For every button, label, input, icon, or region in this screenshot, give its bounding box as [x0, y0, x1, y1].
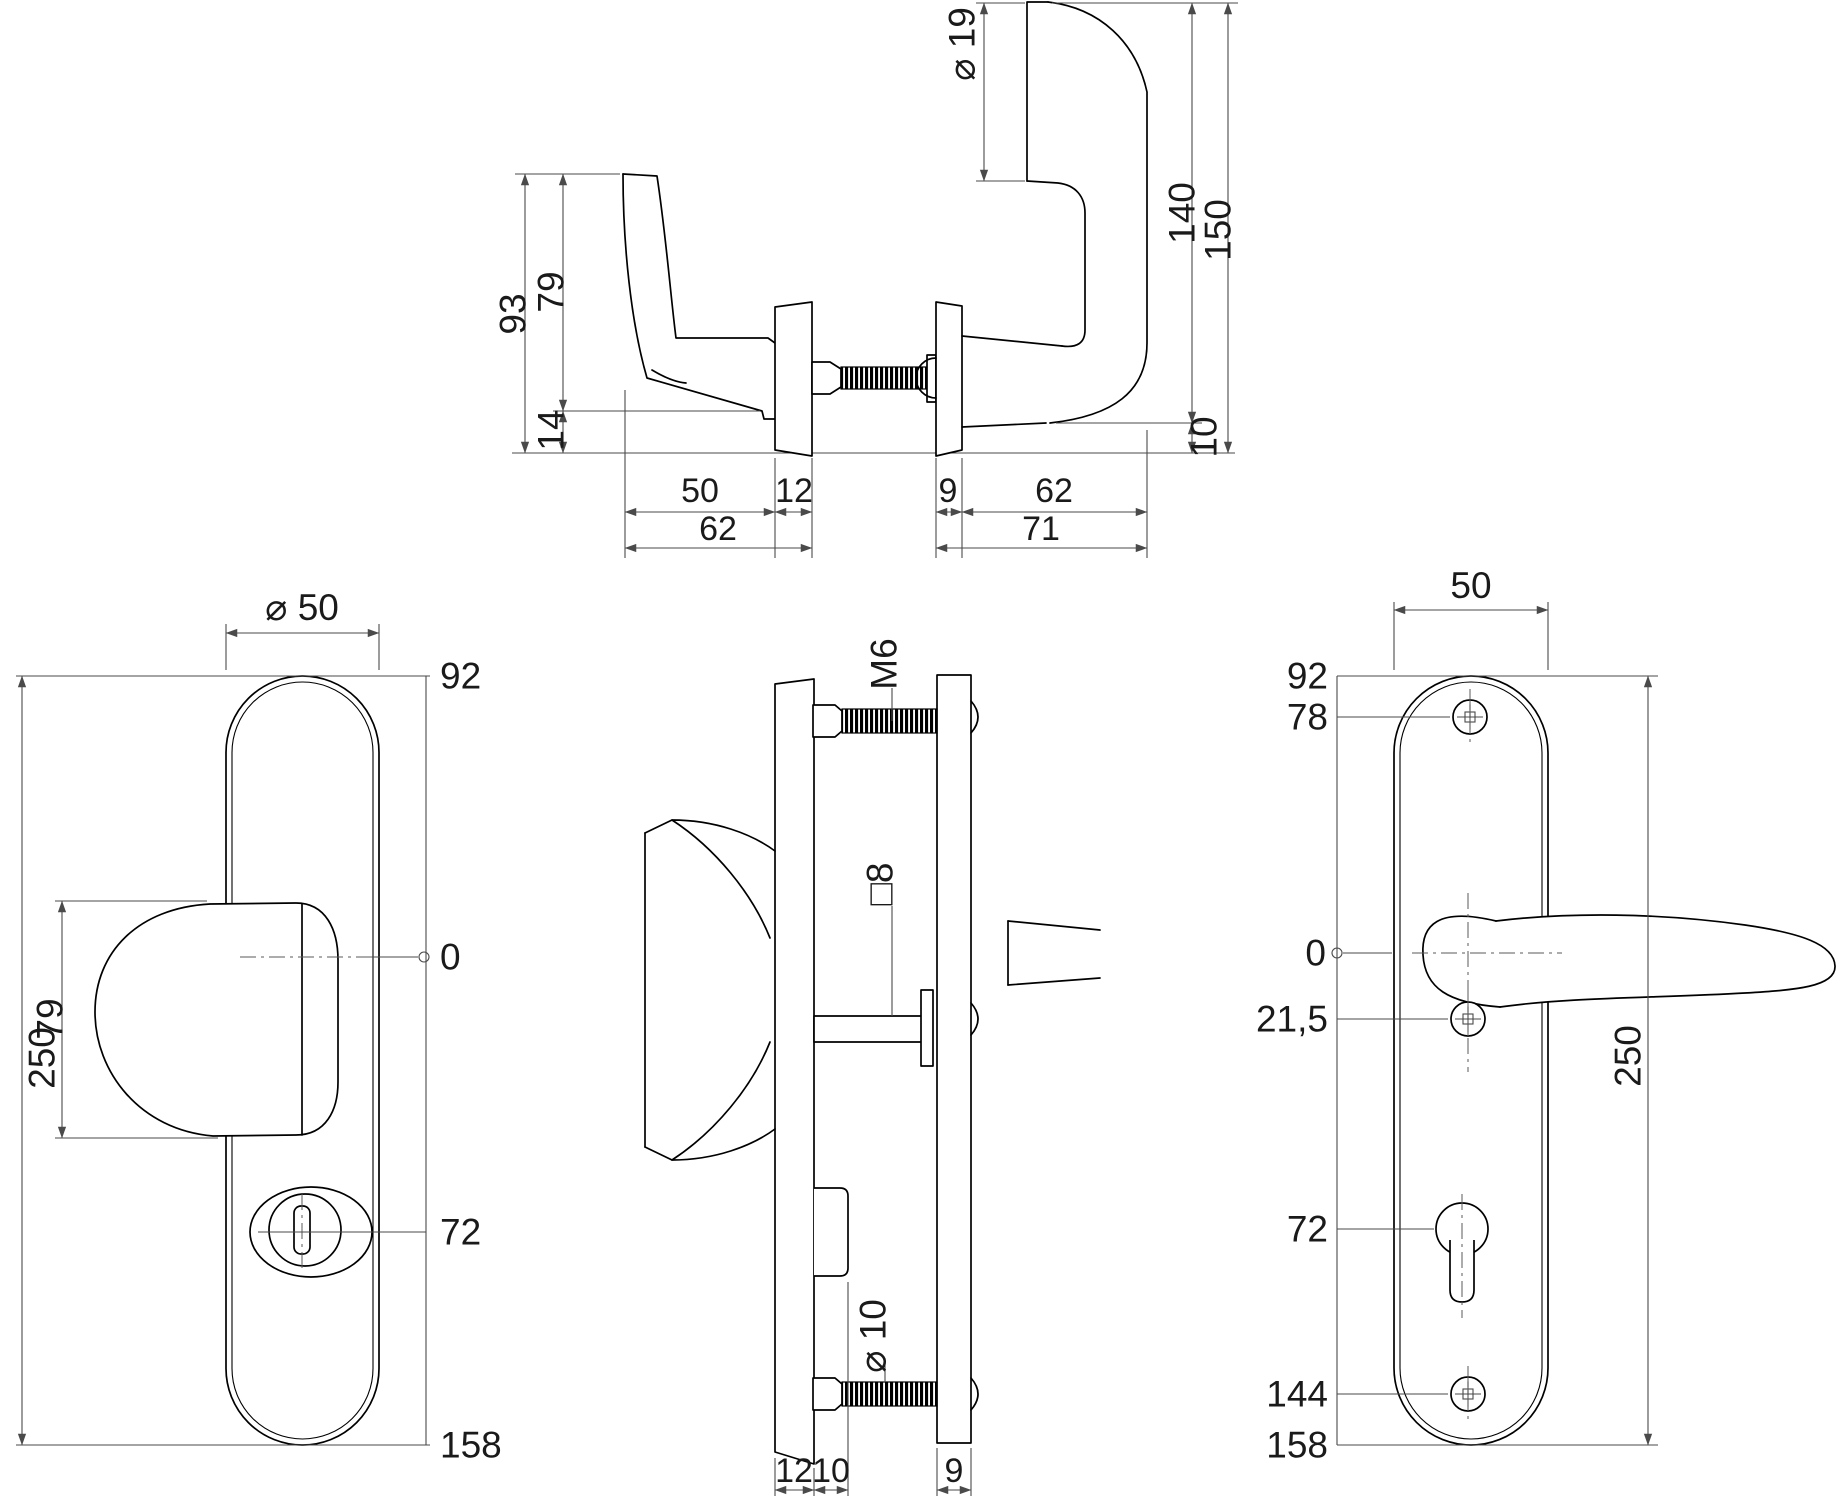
drawing-canvas: 93 79 14 ⌀ 19 140 150 10 — [0, 0, 1847, 1500]
section-bottom-screw: ⌀ 10 — [813, 1299, 937, 1410]
dim-79: 79 — [531, 271, 572, 312]
dim-10: 10 — [1184, 416, 1225, 457]
dim-0-int: 0 — [1305, 933, 1326, 974]
top-view-dims-grip: ⌀ 19 — [942, 3, 1026, 181]
dim-62-left: 62 — [699, 510, 737, 548]
section-exterior-plate — [775, 679, 814, 1464]
dim-sq8: □8 — [860, 863, 901, 906]
top-view-exterior-rose — [775, 302, 812, 456]
dim-71: 71 — [1022, 510, 1060, 548]
interior-plate-view: 92 78 0 21,5 72 144 158 50 250 — [1256, 565, 1835, 1466]
interior-screw-144 — [1451, 1366, 1485, 1422]
top-view: 93 79 14 ⌀ 19 140 150 10 — [493, 2, 1239, 558]
dim-dia19: ⌀ 19 — [942, 7, 983, 81]
top-view-dims-bottom: 50 12 62 9 62 71 — [625, 390, 1147, 558]
exterior-plate-view: 92 0 72 158 250 79 ⌀ 50 — [16, 587, 502, 1466]
interior-plate-inner-contour — [1400, 682, 1542, 1439]
dim-92-ext: 92 — [440, 656, 481, 697]
section-handle-neck — [1008, 921, 1100, 985]
interior-plate-outline — [1394, 676, 1548, 1445]
dim-150: 150 — [1198, 199, 1239, 261]
section-interior-plate — [937, 675, 971, 1443]
dim-72-int: 72 — [1287, 1209, 1328, 1250]
dim-62-right: 62 — [1035, 472, 1073, 510]
dim-14: 14 — [531, 409, 572, 450]
top-view-dims-left: 93 79 14 — [493, 174, 761, 453]
top-view-spindle — [812, 355, 936, 402]
top-view-knob-profile — [623, 174, 775, 419]
interior-width-dim: 50 — [1394, 565, 1548, 670]
dim-10-sec: 10 — [812, 1452, 850, 1490]
interior-cylinder-hole — [1436, 1194, 1488, 1318]
dim-144-int: 144 — [1266, 1374, 1328, 1415]
interior-length-dim: 250 — [1556, 676, 1658, 1445]
section-knob-profile — [645, 820, 775, 1160]
dim-215-int: 21,5 — [1256, 999, 1328, 1040]
interior-screw-78 — [1453, 689, 1487, 745]
dim-158-int: 158 — [1266, 1425, 1328, 1466]
exterior-knob — [95, 903, 338, 1136]
dim-92-int: 92 — [1287, 656, 1328, 697]
top-view-lever-handle — [962, 2, 1147, 427]
dim-9: 9 — [939, 472, 958, 510]
dim-50-knob: 50 — [681, 472, 719, 510]
dim-12: 12 — [775, 472, 813, 510]
top-view-interior-rose — [936, 302, 962, 456]
technical-drawing-page: 93 79 14 ⌀ 19 140 150 10 — [0, 0, 1847, 1500]
dim-50-int: 50 — [1450, 565, 1491, 606]
dim-9-sec: 9 — [945, 1452, 964, 1490]
dim-158-ext: 158 — [440, 1425, 502, 1466]
dim-dia10: ⌀ 10 — [853, 1299, 894, 1373]
interior-dims: 92 78 0 21,5 72 144 158 — [1256, 656, 1556, 1466]
dim-72-ext: 72 — [440, 1212, 481, 1253]
dim-0-ext: 0 — [440, 937, 461, 978]
dim-12-sec: 12 — [775, 1452, 813, 1490]
section-view: M6 □8 ⌀ 10 12 10 9 — [645, 638, 1100, 1496]
section-cylinder-guard — [814, 1188, 848, 1276]
section-screwhead-bumps — [971, 701, 978, 1410]
dim-dia50: ⌀ 50 — [265, 587, 339, 628]
dim-78-int: 78 — [1287, 697, 1328, 738]
dim-79-knob: 79 — [30, 998, 71, 1039]
dim-m6: M6 — [864, 638, 905, 689]
dim-140: 140 — [1162, 182, 1203, 244]
dim-93: 93 — [493, 293, 534, 334]
exterior-width-dim: ⌀ 50 — [226, 587, 379, 670]
dim-250-int: 250 — [1608, 1025, 1649, 1087]
section-spindle: □8 — [814, 863, 933, 1066]
top-view-dims-right: 140 150 10 — [1052, 3, 1239, 458]
section-m6-bolt: M6 — [813, 638, 937, 737]
